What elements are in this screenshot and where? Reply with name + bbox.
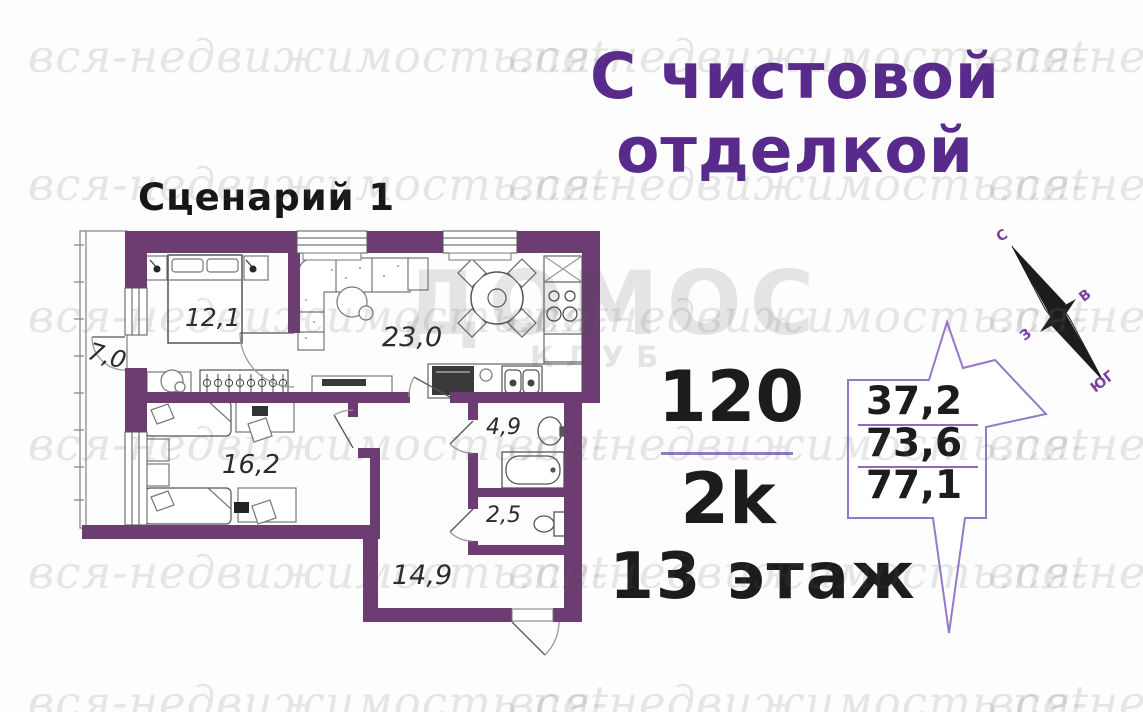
floor-label: 13 этаж bbox=[598, 540, 928, 614]
finish-title-line1: С чистовой bbox=[575, 40, 1015, 114]
area-value-floor-space: 73,6 bbox=[851, 423, 977, 465]
room-label-bathroom: 4,9 bbox=[486, 415, 521, 440]
finish-title-line2: отделкой bbox=[575, 114, 1015, 188]
room-label-hallway: 14,9 bbox=[392, 560, 452, 591]
compass-rose bbox=[1012, 246, 1103, 381]
area-value-total-space: 77,1 bbox=[851, 465, 977, 507]
fraction-line bbox=[661, 452, 793, 455]
flyer-canvas: Сценарий 1 С чистовой отделкой 7,0 12,1 … bbox=[0, 0, 1143, 712]
finish-title: С чистовой отделкой bbox=[575, 40, 1015, 189]
room-label-living: 23,0 bbox=[382, 322, 442, 353]
layout-type: 2k bbox=[658, 458, 798, 540]
scenario-label: Сценарий 1 bbox=[138, 176, 395, 219]
room-label-wc: 2,5 bbox=[486, 503, 521, 528]
balcony-outline bbox=[74, 231, 127, 528]
area-value-living-space: 37,2 bbox=[851, 381, 977, 423]
room-label-bedroom2: 16,2 bbox=[222, 450, 280, 480]
apartment-number: 120 bbox=[658, 356, 798, 438]
room-label-bedroom1: 12,1 bbox=[185, 303, 241, 332]
